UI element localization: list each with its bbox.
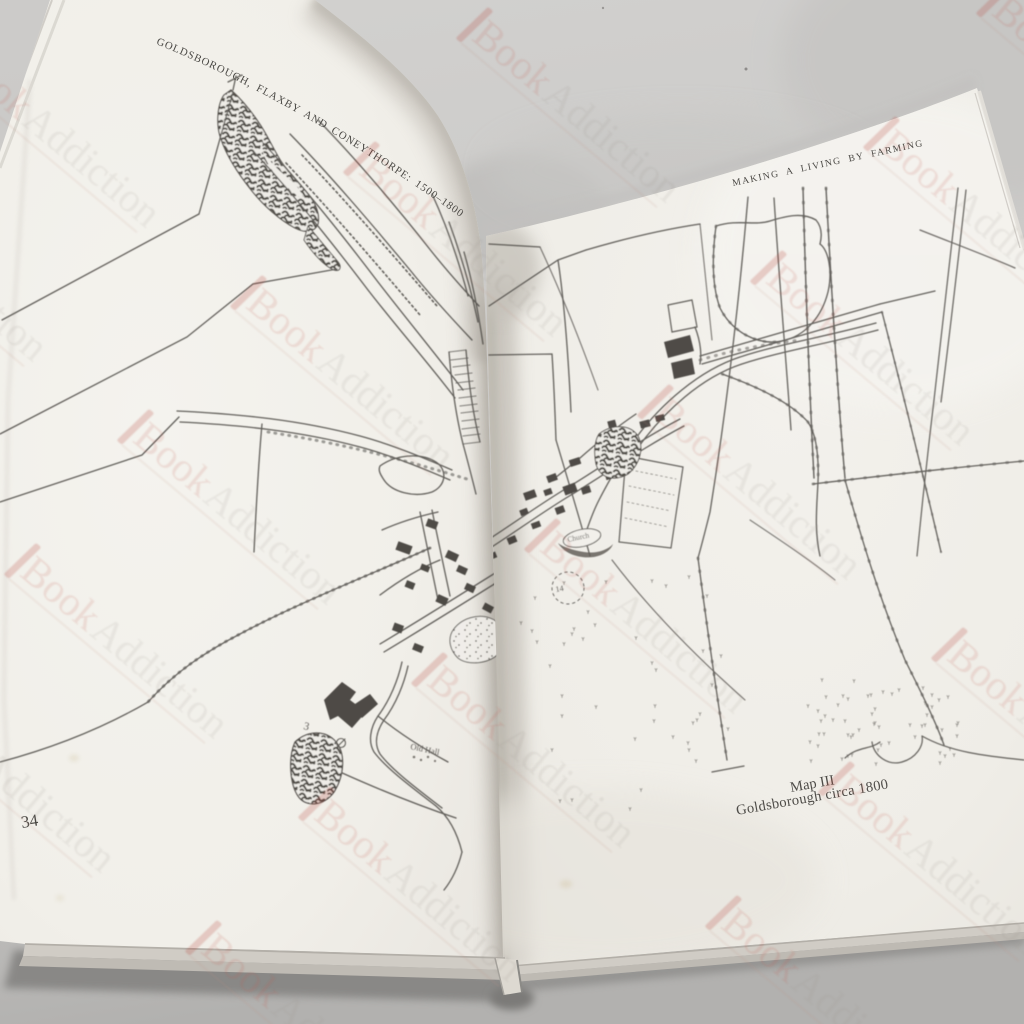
svg-text:14: 14 [555, 584, 564, 594]
